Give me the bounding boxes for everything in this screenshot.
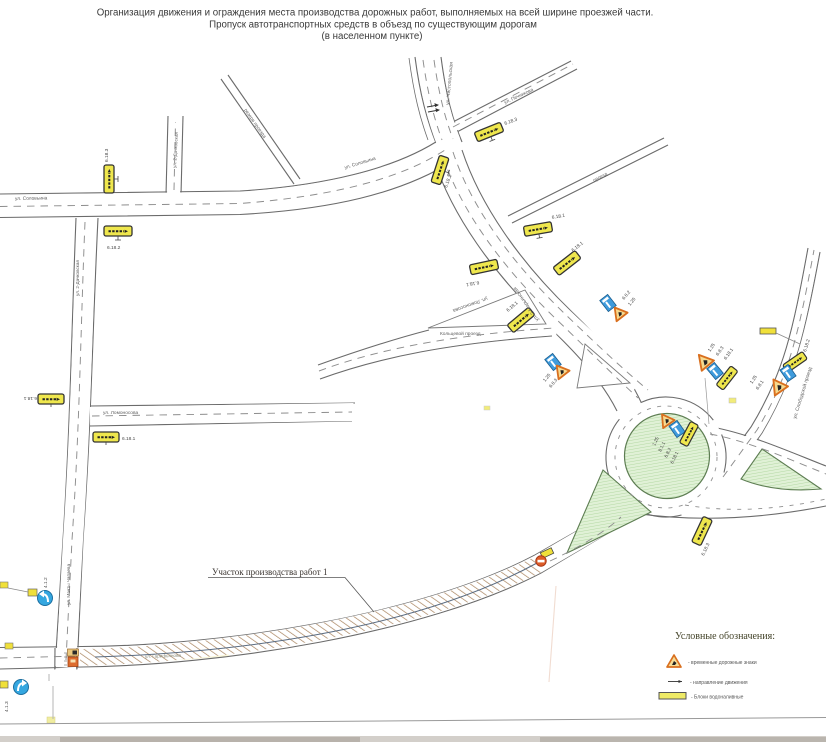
svg-text:6.18.3: 6.18.3 xyxy=(104,148,110,162)
svg-text:Организация движения и огражде: Организация движения и ограждения места … xyxy=(97,8,654,19)
svg-text:4.1.3: 4.1.3 xyxy=(4,701,10,712)
svg-text:ул. Ломоносова: ул. Ломоносова xyxy=(103,410,138,416)
svg-text:- временные дорожные знаки: - временные дорожные знаки xyxy=(688,660,757,666)
svg-text:Кольцевой проезд: Кольцевой проезд xyxy=(440,330,481,337)
svg-text:6.18.2: 6.18.2 xyxy=(107,245,121,251)
svg-text:(в населенном пункте): (в населенном пункте) xyxy=(322,31,423,42)
svg-text:Условные обозначения:: Условные обозначения: xyxy=(675,631,775,642)
svg-text:6.18.1: 6.18.1 xyxy=(23,395,37,401)
svg-text:4.1.2: 4.1.2 xyxy=(43,577,49,588)
svg-text:6.18.1: 6.18.1 xyxy=(122,436,136,442)
svg-text:ул. Соловьина: ул. Соловьина xyxy=(15,195,48,202)
svg-text:- направление движения: - направление движения xyxy=(690,680,748,686)
svg-text:- Блоки водоналивные: - Блоки водоналивные xyxy=(691,695,744,701)
svg-text:Пропуск автотранспортных средс: Пропуск автотранспортных средств в объез… xyxy=(209,20,537,31)
svg-text:ул. Мачты Чапаева: ул. Мачты Чапаева xyxy=(66,564,71,605)
svg-text:ул. 2-Дачковская: ул. 2-Дачковская xyxy=(75,260,80,296)
svg-text:Участок производства работ 1: Участок производства работ 1 xyxy=(212,567,327,577)
